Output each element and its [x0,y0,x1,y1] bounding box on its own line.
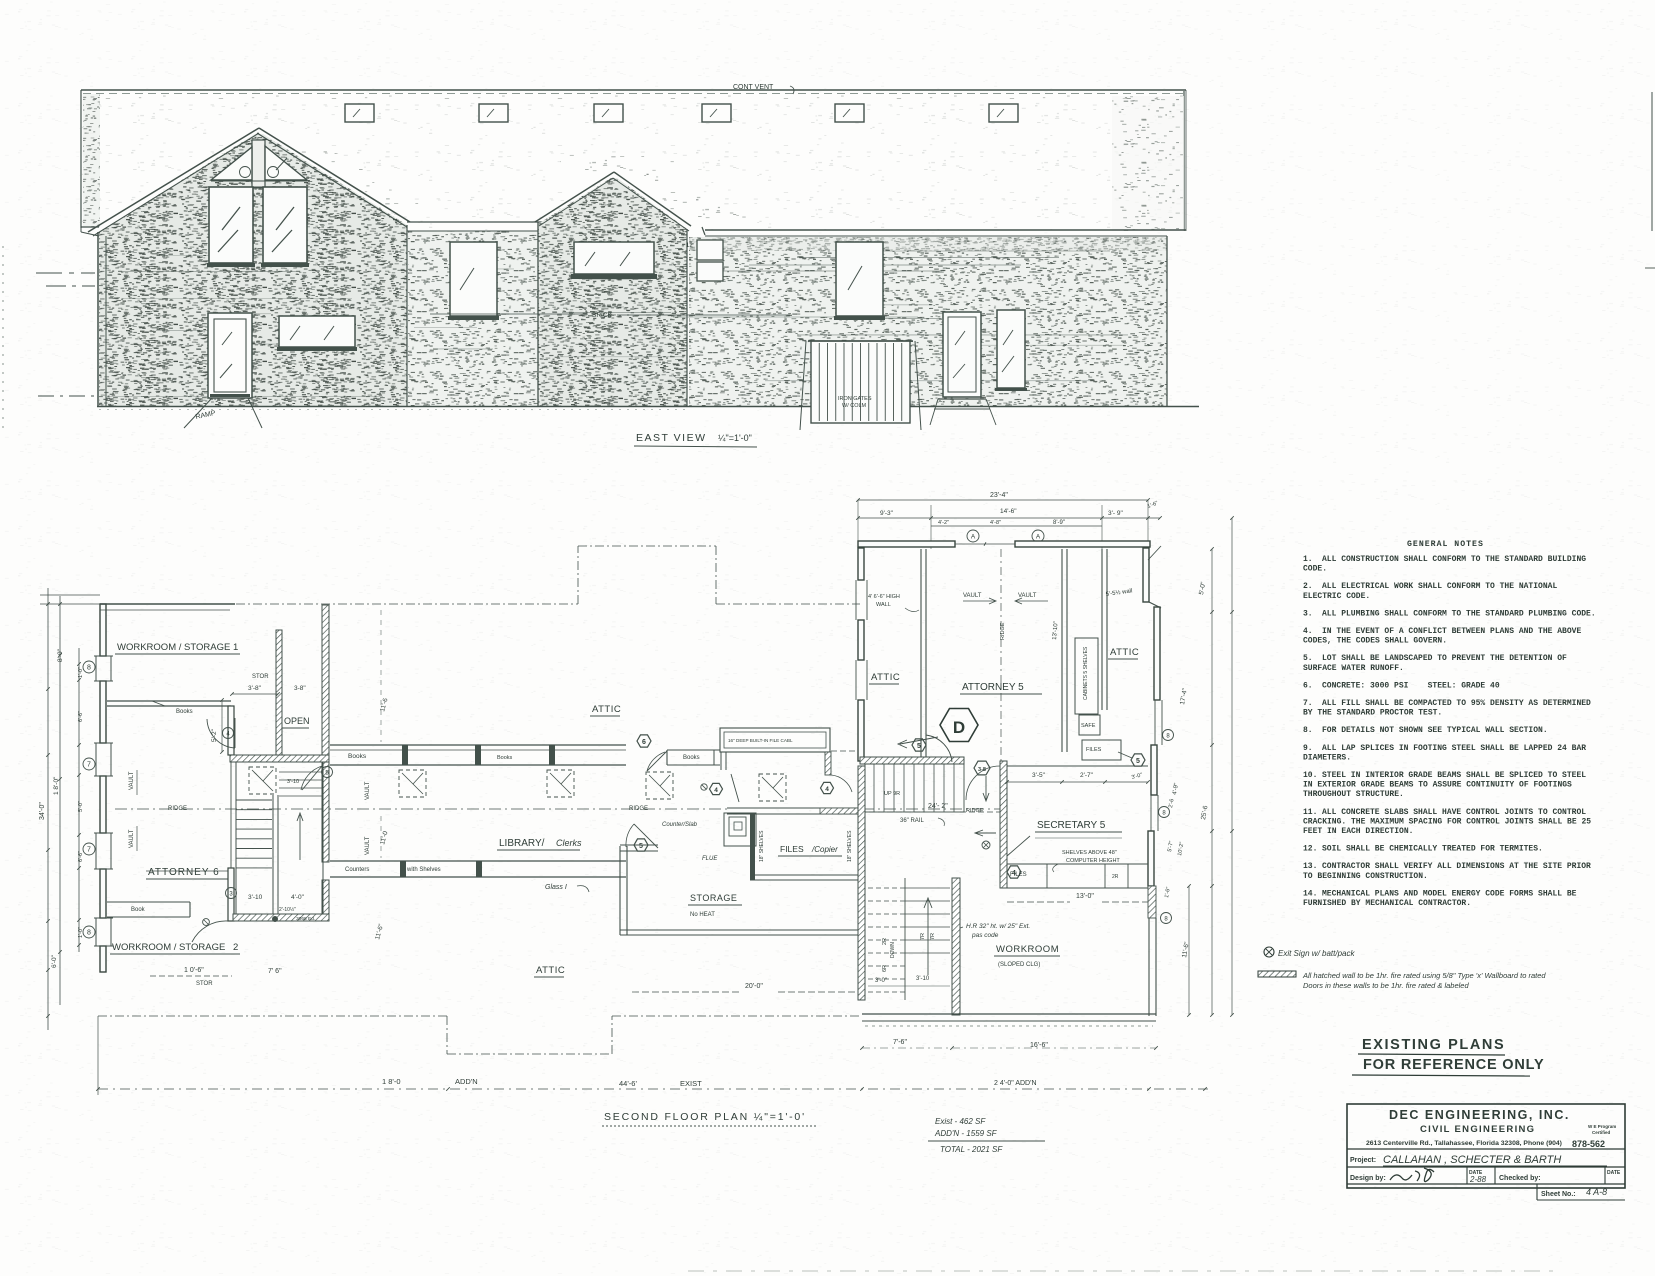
svg-text:FURNISHED BY MECHANICAL CONTRA: FURNISHED BY MECHANICAL CONTRACTOR. [1303,899,1471,908]
svg-text:4: 4 [714,787,718,794]
svg-text:2R: 2R [882,938,888,945]
svg-text:VAULT: VAULT [963,593,982,599]
svg-text:ELECTRIC CODE.: ELECTRIC CODE. [1303,592,1370,601]
svg-text:(SLOPED CLG): (SLOPED CLG) [998,962,1040,968]
svg-text:4'-2": 4'-2" [938,520,949,526]
svg-text:6R: 6R [882,965,888,972]
svg-text:WORKROOM / STORAGE 1: WORKROOM / STORAGE 1 [117,642,238,653]
svg-text:IN THE EVENT OF A CONFLICT BET: IN THE EVENT OF A CONFLICT BETWEEN PLANS… [1322,627,1581,636]
svg-text:RIDGE: RIDGE [1000,622,1006,640]
svg-text:3-8: 3-8 [978,767,986,773]
svg-text:EXISTING PLANS: EXISTING PLANS [1362,1037,1505,1053]
svg-text:36" RAIL: 36" RAIL [900,818,924,824]
svg-text:FILES: FILES [1010,872,1027,878]
svg-text:Sheet No.:: Sheet No.: [1541,1191,1576,1198]
svg-text:4'-0": 4'-0" [291,894,305,901]
svg-text:SHELVES ABOVE 48": SHELVES ABOVE 48" [1062,850,1117,856]
svg-text:44'-6': 44'-6' [619,1079,637,1088]
svg-text:MECHANICAL PLANS AND MODEL ENE: MECHANICAL PLANS AND MODEL ENERGY CODE F… [1322,889,1577,898]
svg-text:CIVIL ENGINEERING: CIVIL ENGINEERING [1420,1124,1535,1135]
svg-text:5: 5 [917,743,921,750]
svg-text:TO BEGINNING CONSTRUCTION.: TO BEGINNING CONSTRUCTION. [1303,872,1428,881]
svg-text:LOT SHALL BE LANDSCAPED TO PRE: LOT SHALL BE LANDSCAPED TO PREVENT THE D… [1322,654,1567,663]
svg-text:Books: Books [683,755,700,761]
svg-text:FOR REFERENCE ONLY: FOR REFERENCE ONLY [1363,1057,1544,1073]
svg-text:13.: 13. [1303,862,1317,871]
svg-text:3-8": 3-8" [294,685,306,692]
svg-text:Book: Book [131,907,146,913]
svg-text:COMPUTER HEIGHT: COMPUTER HEIGHT [1066,858,1120,864]
svg-text:All hatched wall to be 1hr. fi: All hatched wall to be 1hr. fire rated u… [1302,971,1546,980]
svg-text:TOTAL - 2021 SF: TOTAL - 2021 SF [940,1145,1003,1154]
svg-text:A: A [1036,534,1041,541]
svg-text:Books: Books [497,755,513,761]
svg-text:24'- 2": 24'- 2" [928,803,948,810]
svg-text:9.: 9. [1303,744,1313,753]
svg-text:7R: 7R [920,933,926,940]
svg-text:1 8'-0": 1 8'-0" [53,776,60,795]
svg-text:6.: 6. [1303,681,1313,690]
svg-text:3.: 3. [1303,609,1313,618]
svg-text:CONT VENT: CONT VENT [733,84,774,91]
svg-text:13'-0": 13'-0" [1076,893,1094,900]
svg-text:1.: 1. [1303,555,1313,564]
svg-text:ATTORNEY 5: ATTORNEY 5 [962,682,1024,693]
svg-text:BRICK: BRICK [592,312,613,319]
svg-text:IN EXTERIOR GRADE BEAMS TO ASS: IN EXTERIOR GRADE BEAMS TO ASSURE CONTIN… [1303,781,1572,790]
svg-text:CONTRACTOR SHALL VERIFY ALL DI: CONTRACTOR SHALL VERIFY ALL DIMENSIONS A… [1322,862,1591,871]
svg-text:3'-10: 3'-10 [248,894,263,901]
svg-text:ALL PLUMBING SHALL CONFORM TO: ALL PLUMBING SHALL CONFORM TO THE STANDA… [1322,609,1596,618]
svg-text:Project:: Project: [1350,1157,1376,1164]
svg-text:FEET IN EACH DIRECTION.: FEET IN EACH DIRECTION. [1303,827,1413,836]
svg-text:8: 8 [87,665,91,672]
svg-text:878-562: 878-562 [1572,1139,1605,1149]
svg-text:7R: 7R [930,933,936,940]
svg-text:5'-0": 5'-0" [78,801,84,812]
svg-text:5'-2": 5'-2" [211,728,218,742]
svg-text:W/ COLM: W/ COLM [842,403,867,409]
svg-text:7' 6": 7' 6" [268,968,282,975]
svg-text:DEC ENGINEERING, INC.: DEC ENGINEERING, INC. [1389,1108,1570,1122]
svg-text:3'-10: 3'-10 [916,976,930,982]
svg-text:¼"=1'-0": ¼"=1'-0" [718,433,752,443]
svg-text:Doors in these walls to be 1hr: Doors in these walls to be 1hr. fire rat… [1303,981,1469,990]
svg-text:Glass I: Glass I [545,884,567,891]
svg-text:2R: 2R [1112,874,1119,880]
svg-text:RIDGE: RIDGE [966,808,984,814]
svg-text:3068 Ed.: 3068 Ed. [296,916,315,922]
svg-text:VAULT: VAULT [365,836,371,855]
svg-text:3'-8": 3'-8" [248,685,262,692]
svg-text:ADD'N: ADD'N [455,1077,478,1086]
svg-text:Counters: Counters [345,867,369,873]
svg-text:8: 8 [87,930,91,937]
svg-text:8.: 8. [1303,726,1313,735]
svg-text:ATTORNEY 6: ATTORNEY 6 [148,867,220,878]
svg-text:34'-0": 34'-0" [39,802,46,820]
svg-text:4: 4 [825,786,829,793]
svg-text:2-88: 2-88 [1469,1175,1487,1184]
svg-text:SECOND FLOOR PLAN ¼"=1'-0': SECOND FLOOR PLAN ¼"=1'-0' [604,1111,806,1123]
svg-text:5.: 5. [1303,654,1313,663]
svg-text:Books: Books [176,709,193,715]
svg-text:A: A [971,534,976,541]
svg-text:RIDGE: RIDGE [629,806,648,812]
svg-text:pas code: pas code [971,932,999,939]
svg-text:STOR: STOR [196,981,213,987]
svg-text:20'-0": 20'-0" [745,983,763,990]
svg-text:CODE.: CODE. [1303,565,1327,574]
svg-text:16" DEEP BUILT-IN FILE CABL: 16" DEEP BUILT-IN FILE CABL [728,738,793,743]
svg-text:SOIL SHALL BE CHEMICALLY TREAT: SOIL SHALL BE CHEMICALLY TREATED FOR TER… [1322,845,1543,854]
svg-text:W E Program: W E Program [1588,1124,1616,1129]
svg-text:16'-6": 16'-6" [1030,1042,1048,1049]
svg-text:4 A-8: 4 A-8 [1586,1187,1607,1197]
svg-text:SECRETARY 5: SECRETARY 5 [1037,820,1106,831]
svg-text:8'-9": 8'-9" [1053,520,1065,526]
svg-text:ATTIC: ATTIC [536,965,565,976]
svg-text:DATE: DATE [1607,1170,1621,1176]
svg-text:9'-3": 9'-3" [880,510,894,517]
svg-text:SURFACE WATER RUNOFF.: SURFACE WATER RUNOFF. [1303,664,1404,673]
svg-text:IRON GATES: IRON GATES [838,396,872,402]
svg-text:ATTIC: ATTIC [592,704,621,715]
svg-text:4' 6'-6" HIGH: 4' 6'-6" HIGH [868,594,900,600]
svg-text:H.R 32" ht. w/ 25" Ext.: H.R 32" ht. w/ 25" Ext. [966,923,1030,930]
svg-text:2613 Centerville Rd., Tallahas: 2613 Centerville Rd., Tallahassee, Flori… [1366,1140,1562,1147]
svg-text:FILES: FILES [1086,747,1102,753]
svg-text:11.: 11. [1303,808,1317,817]
svg-text:STEEL IN INTERIOR GRADE BEAMS: STEEL IN INTERIOR GRADE BEAMS SHALL BE S… [1322,771,1586,780]
svg-text:6'-6": 6'-6" [78,851,84,862]
svg-text:14.: 14. [1303,889,1317,898]
svg-text:FLUE: FLUE [702,856,718,862]
svg-text:4.: 4. [1303,627,1313,636]
svg-text:Checked by:: Checked by: [1499,1175,1541,1182]
svg-text:12: 12 [686,243,693,249]
svg-text:ATTIC: ATTIC [871,672,900,683]
svg-text:EAST VIEW: EAST VIEW [636,432,707,444]
svg-text:STORAGE: STORAGE [690,893,737,903]
svg-text:EXIST: EXIST [680,1079,702,1088]
svg-text:Clerks: Clerks [556,838,582,848]
svg-text:FILES: FILES [780,844,804,854]
svg-text:CODES, THE CODES SHALL GOVERN.: CODES, THE CODES SHALL GOVERN. [1303,637,1447,646]
svg-text:THROUGHOUT STRUCTURE.: THROUGHOUT STRUCTURE. [1303,790,1404,799]
svg-text:1 8'-0: 1 8'-0 [382,1077,401,1086]
svg-text:STOR: STOR [252,674,269,680]
svg-text:ADD'N - 1559 SF: ADD'N - 1559 SF [934,1129,998,1138]
svg-text:18" SHELVES: 18" SHELVES [847,830,853,862]
svg-text:LIBRARY/: LIBRARY/ [499,838,545,849]
svg-text:12.: 12. [1303,845,1317,854]
svg-text:ALL CONCRETE SLABS SHALL HAVE: ALL CONCRETE SLABS SHALL HAVE CONTROL JO… [1322,808,1586,817]
svg-text:WALL: WALL [876,602,891,608]
svg-text:3'-5": 3'-5" [1032,772,1046,779]
svg-text:No HEAT: No HEAT [690,912,715,918]
svg-text:7.: 7. [1303,699,1313,708]
svg-text:2'-10½": 2'-10½" [279,906,296,913]
svg-text:Design by:: Design by: [1350,1175,1386,1182]
svg-text:7: 7 [87,762,91,769]
svg-text:1 0'-6": 1 0'-6" [184,967,204,974]
svg-text:DIAMETERS.: DIAMETERS. [1303,753,1351,762]
svg-text:6'-6": 6'-6" [78,711,84,722]
svg-text:Books: Books [348,753,367,760]
svg-text:Exist - 462 SF: Exist - 462 SF [935,1117,986,1126]
svg-text:CRACKING. THE MAXIMUM SPACING: CRACKING. THE MAXIMUM SPACING FOR CONTRO… [1303,817,1591,826]
svg-text:ALL LAP SPLICES IN FOOTING STE: ALL LAP SPLICES IN FOOTING STEEL SHALL B… [1322,744,1586,753]
svg-text:3'-0": 3'-0" [875,978,887,984]
svg-text:8'-0": 8'-0" [57,648,64,662]
svg-text:3'- 9": 3'- 9" [1108,510,1123,517]
svg-text:2'-7": 2'-7" [1080,772,1094,779]
svg-text:Certified: Certified [1592,1130,1611,1135]
svg-text:Counter/Slab: Counter/Slab [662,822,698,828]
svg-text:CALLAHAN , SCHECTER & BARTH: CALLAHAN , SCHECTER & BARTH [1383,1154,1561,1166]
svg-text:CABINETS 5 SHELVES: CABINETS 5 SHELVES [1083,646,1089,700]
svg-text:7: 7 [87,847,91,854]
svg-text:OPEN: OPEN [284,716,310,726]
svg-text:5: 5 [1136,758,1140,765]
svg-text:SAFE: SAFE [1081,723,1096,729]
svg-text:UP 9R: UP 9R [884,791,900,797]
svg-text:ALL ELECTRICAL WORK SHALL CONF: ALL ELECTRICAL WORK SHALL CONFORM TO THE… [1322,582,1557,591]
svg-text:7'-6": 7'-6" [893,1039,907,1046]
svg-text:/Copier: /Copier [811,845,838,854]
svg-text:2: 2 [233,942,238,953]
svg-text:VAULT: VAULT [129,771,135,790]
svg-text:CONCRETE: 3000 PSI STEEL: G: CONCRETE: 3000 PSI STEEL: GRADE 40 [1322,681,1500,690]
svg-text:GENERAL NOTES: GENERAL NOTES [1407,540,1484,549]
svg-text:ALL CONSTRUCTION SHALL CONFORM: ALL CONSTRUCTION SHALL CONFORM TO THE ST… [1322,555,1586,564]
svg-text:2.: 2. [1303,582,1313,591]
svg-text:2 4'-0" ADD'N: 2 4'-0" ADD'N [994,1080,1037,1087]
svg-text:WORKROOM: WORKROOM [996,944,1059,955]
svg-text:6: 6 [642,739,646,746]
svg-text:ALL FILL SHALL BE COMPACTED TO: ALL FILL SHALL BE COMPACTED TO 95% DENSI… [1322,699,1591,708]
svg-text:10.: 10. [1303,771,1317,780]
svg-text:VAULT: VAULT [129,829,135,848]
svg-text:23'-4": 23'-4" [990,492,1008,499]
svg-text:Exit Sign w/ batt/pack: Exit Sign w/ batt/pack [1278,949,1355,958]
svg-text:4'-8": 4'-8" [990,520,1001,526]
svg-text:5: 5 [639,843,643,850]
svg-text:RIDGE: RIDGE [168,806,187,812]
svg-text:FOR DETAILS NOT SHOWN SEE TYPI: FOR DETAILS NOT SHOWN SEE TYPICAL WALL S… [1322,726,1548,735]
svg-text:DOWN: DOWN [890,942,896,958]
svg-text:3'-10: 3'-10 [287,779,299,785]
svg-text:WORKROOM / STORAGE: WORKROOM / STORAGE [112,942,225,953]
svg-text:D: D [953,718,965,737]
svg-text:6'-0": 6'-0" [51,954,58,968]
svg-text:18" SHELVES: 18" SHELVES [759,830,765,862]
svg-text:with Shelves: with Shelves [406,867,441,873]
svg-text:VAULT: VAULT [365,781,371,800]
svg-text:BY THE STANDARD PROCTOR TEST.: BY THE STANDARD PROCTOR TEST. [1303,709,1442,718]
svg-text:ATTIC: ATTIC [1110,647,1139,658]
svg-text:14'-6": 14'-6" [1000,508,1017,515]
